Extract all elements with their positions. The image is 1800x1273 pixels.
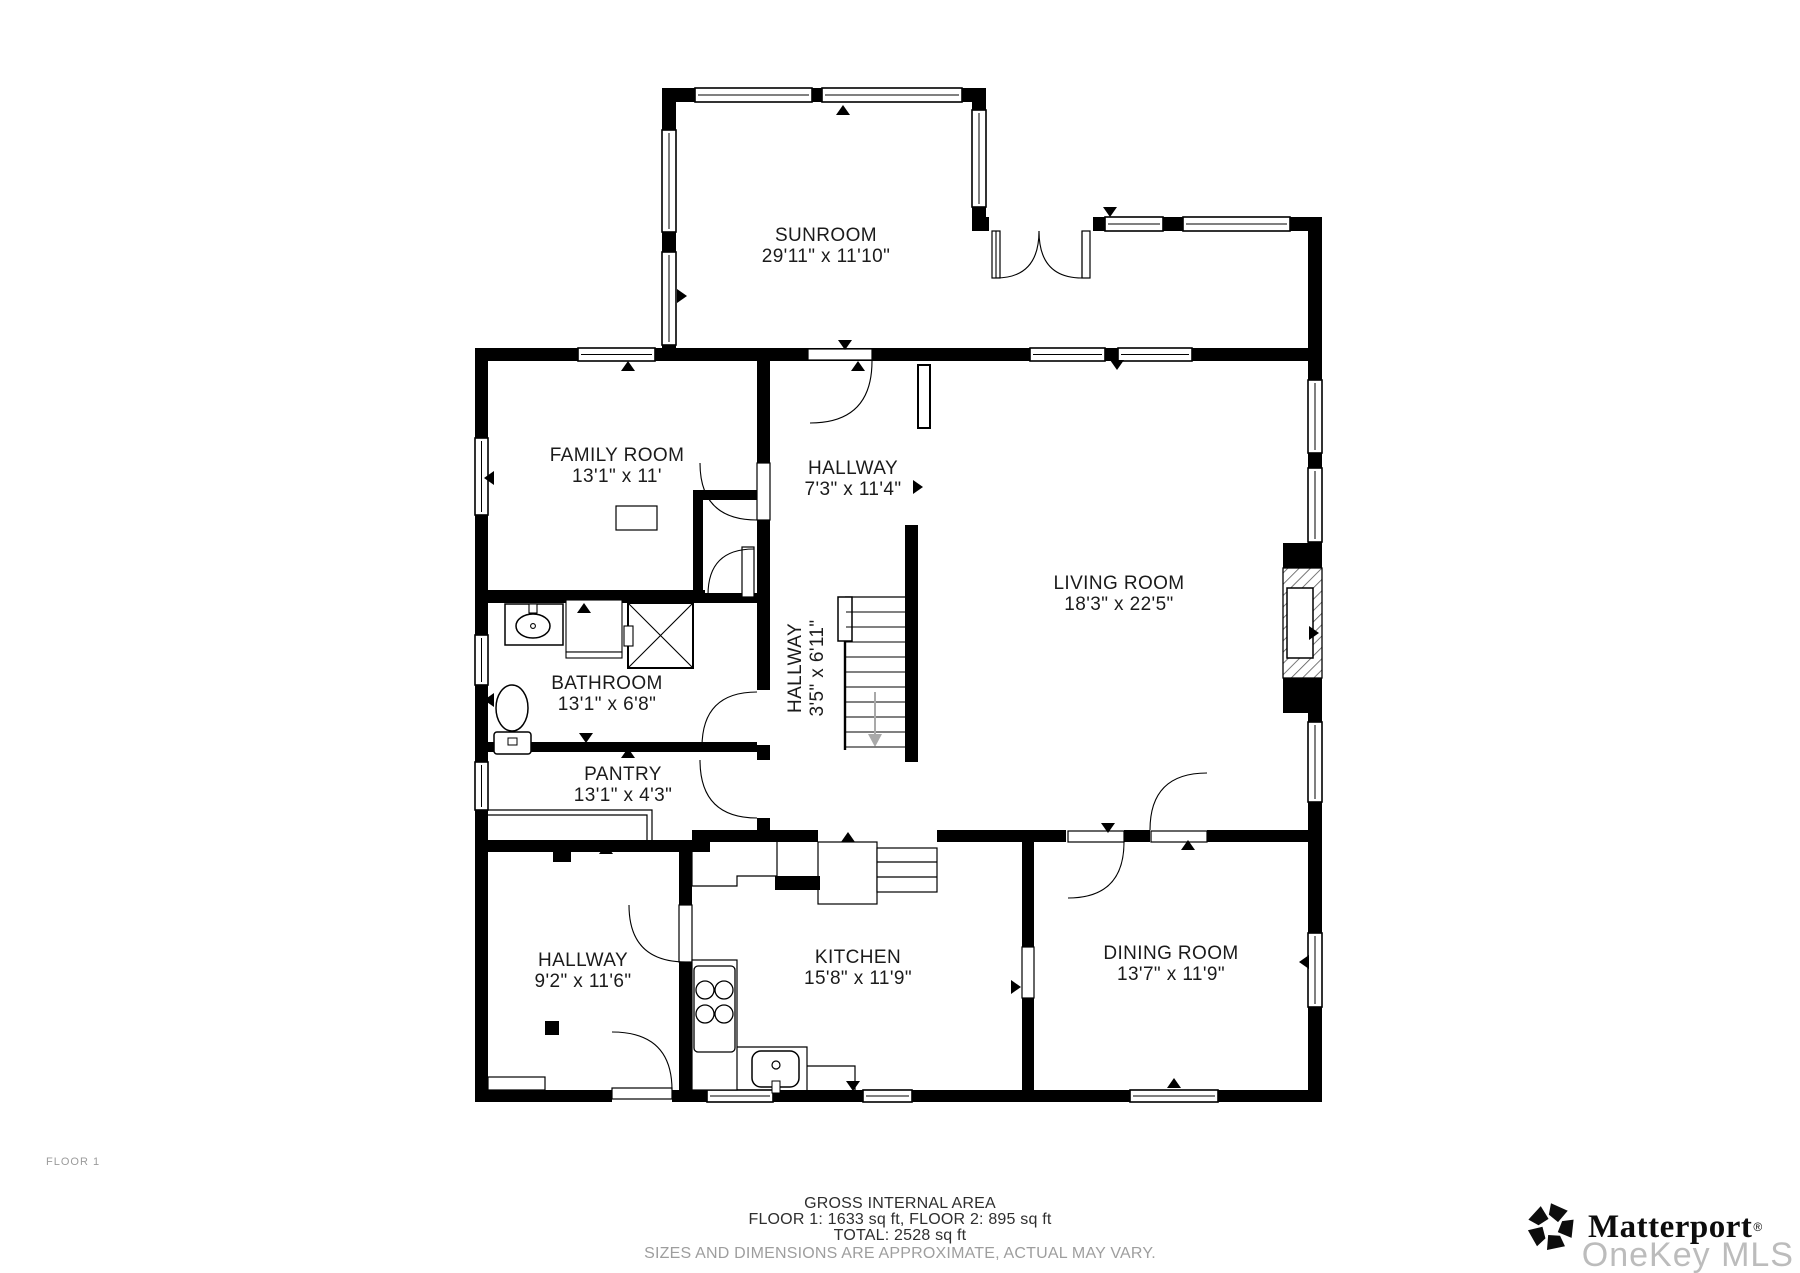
door-swing-arc [700, 760, 757, 818]
toilet [494, 685, 531, 754]
door-swing-arc [1150, 773, 1207, 830]
window [1308, 380, 1322, 453]
room-label: SUNROOM29'11" x 11'10" [762, 225, 891, 267]
room-dims: 7'3" x 11'4" [804, 479, 901, 500]
window [822, 88, 962, 102]
window [1183, 217, 1290, 231]
floor-label: FLOOR 1 [46, 1156, 100, 1168]
room-name: HALLWAY [785, 623, 806, 713]
direction-arrow [1011, 980, 1021, 994]
floor-plan-drawing: SUNROOM29'11" x 11'10"FAMILY ROOM13'1" x… [0, 0, 1800, 1273]
room-dims: 3'5" x 6'11" [807, 619, 828, 716]
window [1308, 722, 1322, 802]
room-name: HALLWAY [538, 950, 628, 971]
room-dims: 13'1" x 4'3" [574, 785, 672, 806]
door-swing-arc [702, 692, 757, 747]
window [707, 1090, 773, 1102]
room-label: HALLWAY9'2" x 11'6" [534, 950, 631, 992]
door-swing-arc [996, 231, 1039, 278]
room-name: DINING ROOM [1103, 943, 1238, 964]
stairs-down-arrow [868, 734, 882, 747]
door-leaf [1022, 947, 1034, 998]
room-dims: 13'7" x 11'9" [1117, 964, 1225, 985]
room-name: HALLWAY [808, 458, 898, 479]
window [1308, 468, 1322, 542]
room-label: KITCHEN15'8" x 11'9" [804, 947, 912, 989]
door-leaf [612, 1088, 672, 1099]
direction-arrow [851, 361, 865, 371]
direction-arrow [836, 105, 850, 115]
stove [694, 966, 735, 1052]
door-leaf [1068, 831, 1124, 842]
entry-step [488, 1077, 545, 1090]
direction-arrow [1110, 360, 1124, 370]
staircase [838, 597, 905, 750]
door-swing-arc [629, 905, 686, 962]
registered-mark: ® [1753, 1220, 1762, 1234]
door-leaf [757, 463, 770, 520]
room-name: PANTRY [584, 764, 662, 785]
room-dims: 9'2" x 11'6" [534, 971, 631, 992]
kitchen-sink [752, 1051, 799, 1093]
window [475, 438, 488, 515]
matterport-pinwheel-icon [1524, 1200, 1578, 1254]
room-name: SUNROOM [775, 225, 877, 246]
wall-recess [616, 506, 657, 530]
half-wall-stub [918, 365, 930, 428]
room-dims: 15'8" x 11'9" [804, 968, 912, 989]
room-dims: 13'1" x 6'8" [558, 694, 656, 715]
window [1105, 217, 1163, 231]
room-dims: 29'11" x 11'10" [762, 246, 891, 267]
pantry-shelf [487, 810, 652, 840]
direction-arrow [579, 733, 593, 743]
window [695, 88, 812, 102]
basement-stairs [818, 832, 937, 904]
window [1118, 348, 1192, 361]
room-name: LIVING ROOM [1053, 573, 1184, 594]
door-leaf [742, 547, 754, 597]
door-leaf [1151, 831, 1207, 842]
window [578, 348, 655, 361]
room-name: BATHROOM [551, 673, 663, 694]
door-leaf [808, 349, 872, 360]
window [1308, 933, 1322, 1007]
room-label: HALLWAY3'5" x 6'11" [785, 619, 828, 716]
door-swing-arc [612, 1032, 672, 1090]
room-name: KITCHEN [815, 947, 901, 968]
room-label: HALLWAY7'3" x 11'4" [804, 458, 901, 500]
direction-arrow [1299, 955, 1309, 969]
room-label: BATHROOM13'1" x 6'8" [551, 673, 663, 715]
window [662, 130, 676, 232]
door-swing-arc [1068, 842, 1124, 898]
window [972, 110, 986, 207]
window [863, 1090, 912, 1102]
direction-arrow [1103, 207, 1117, 217]
room-name: FAMILY ROOM [550, 445, 685, 466]
direction-arrow [846, 1081, 860, 1091]
onekey-mls-watermark: OneKey MLS [1582, 1236, 1794, 1273]
direction-arrow [677, 289, 687, 303]
fireplace [1283, 568, 1322, 678]
floor-plan-page: SUNROOM29'11" x 11'10"FAMILY ROOM13'1" x… [0, 0, 1800, 1273]
door-leaf [1082, 231, 1090, 278]
window [1130, 1090, 1218, 1102]
door-swing-arc [1039, 231, 1082, 278]
bathroom-closet [566, 600, 622, 658]
direction-arrow [913, 480, 923, 494]
window [662, 252, 676, 345]
window [475, 635, 488, 685]
room-label: DINING ROOM13'7" x 11'9" [1103, 943, 1238, 985]
direction-arrow [1167, 1078, 1181, 1088]
room-dims: 13'1" x 11' [572, 466, 662, 487]
bathroom-sink [505, 604, 563, 645]
window [1030, 348, 1105, 361]
room-dims: 18'3" x 22'5" [1064, 594, 1173, 615]
room-label: FAMILY ROOM13'1" x 11' [550, 445, 685, 487]
door-leaf [679, 905, 692, 962]
shower [624, 603, 693, 668]
room-label: LIVING ROOM18'3" x 22'5" [1053, 573, 1184, 615]
room-label: PANTRY13'1" x 4'3" [574, 764, 672, 806]
window [475, 762, 488, 810]
direction-arrow [621, 361, 635, 371]
